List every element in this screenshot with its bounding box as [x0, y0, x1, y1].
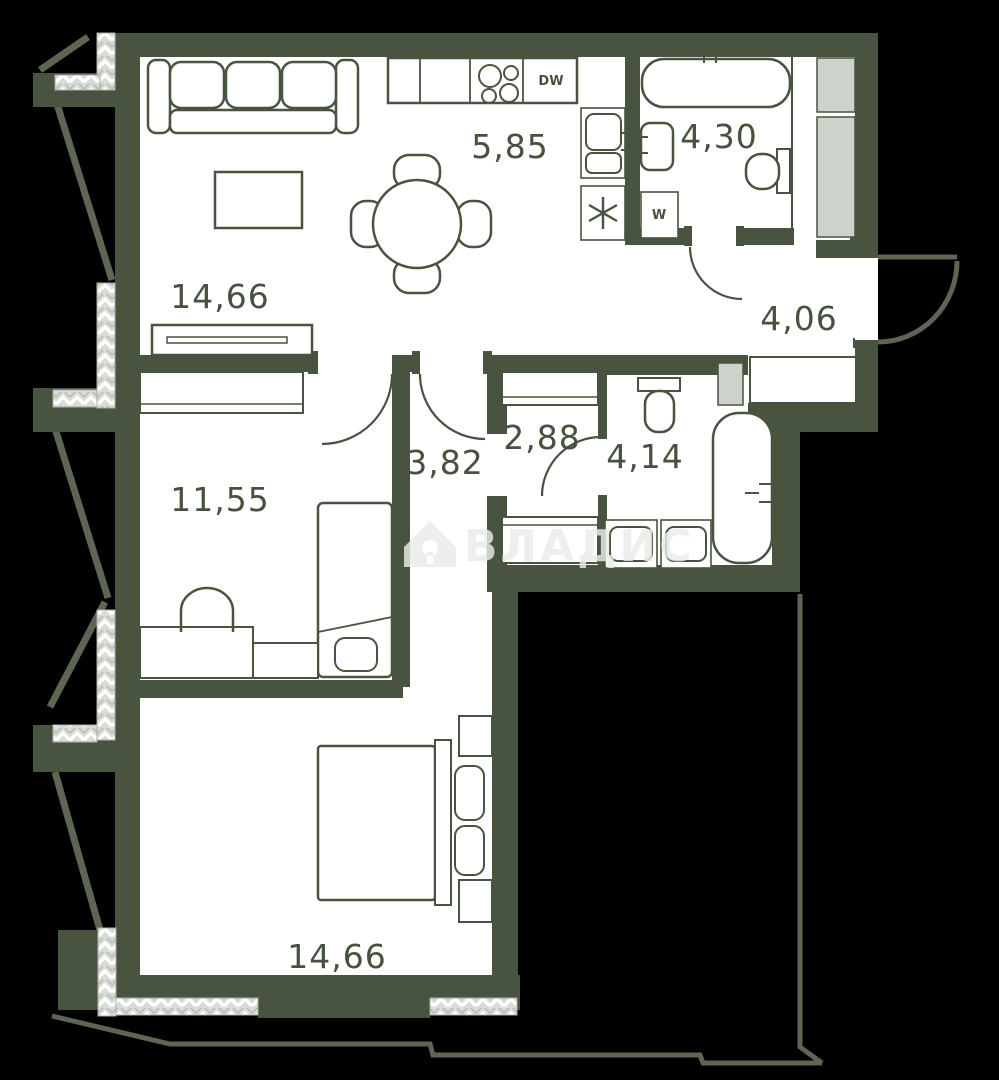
toilet-bowl [746, 154, 779, 189]
label-bedroom-left: 11,55 [170, 480, 269, 519]
bed-headboard [435, 740, 451, 905]
label-kitchen: 5,85 [471, 127, 548, 166]
pillow [455, 826, 484, 875]
door-post [412, 351, 420, 374]
label-dishwasher: DW [538, 74, 563, 89]
wardrobe [140, 372, 303, 413]
watermark-text: ВЛАДИС [464, 521, 694, 572]
bedroom-bottom-furniture [318, 716, 492, 922]
sofa-cushion [226, 62, 280, 108]
toilet-tank [638, 378, 680, 391]
nightstand [459, 880, 492, 922]
cabinet [253, 643, 318, 678]
double-bed [318, 746, 435, 900]
sofa-cushion [170, 62, 224, 108]
kitchen-sink-bowl [586, 114, 621, 150]
label-washer: W [652, 208, 666, 223]
bathtub [642, 59, 790, 107]
door-post [483, 351, 492, 374]
coffee-table [215, 172, 302, 228]
label-bathroom-top: 4,30 [680, 117, 757, 156]
pillow [455, 766, 484, 820]
shaft-panel [817, 117, 855, 237]
sofa-armrest [336, 60, 358, 133]
floor-plan: 14,66 5,85 4,30 4,06 2,88 3,82 4,14 11,5… [0, 0, 999, 1080]
pillow [335, 638, 377, 671]
door-post [736, 226, 744, 246]
door-post [684, 226, 692, 246]
entrance-door-post [853, 248, 878, 258]
tv-stand-shelf [167, 337, 287, 343]
label-wardrobe-room: 2,88 [503, 418, 580, 457]
label-entry-hall: 4,06 [760, 299, 837, 338]
shaft-panel [817, 58, 855, 112]
label-living-room: 14,66 [170, 277, 269, 316]
label-corridor: 3,82 [406, 443, 483, 482]
label-bathroom-mid: 4,14 [606, 437, 683, 476]
shaft-panel [718, 363, 743, 405]
sofa-cushion [282, 62, 336, 108]
dining-table [373, 180, 461, 268]
bathtub [713, 413, 772, 563]
desk [140, 627, 253, 678]
toilet-bowl [645, 391, 674, 432]
sofa-armrest [148, 60, 170, 133]
nightstand [459, 716, 492, 756]
sofa-seat [170, 110, 336, 133]
hall-closet [750, 357, 856, 403]
floor-plan-canvas: 14,66 5,85 4,30 4,06 2,88 3,82 4,14 11,5… [0, 0, 999, 1080]
shelf-unit [502, 372, 598, 405]
washbasin [641, 123, 673, 170]
label-bedroom-bottom: 14,66 [287, 937, 386, 976]
kitchen-sink-drainer [586, 153, 621, 173]
